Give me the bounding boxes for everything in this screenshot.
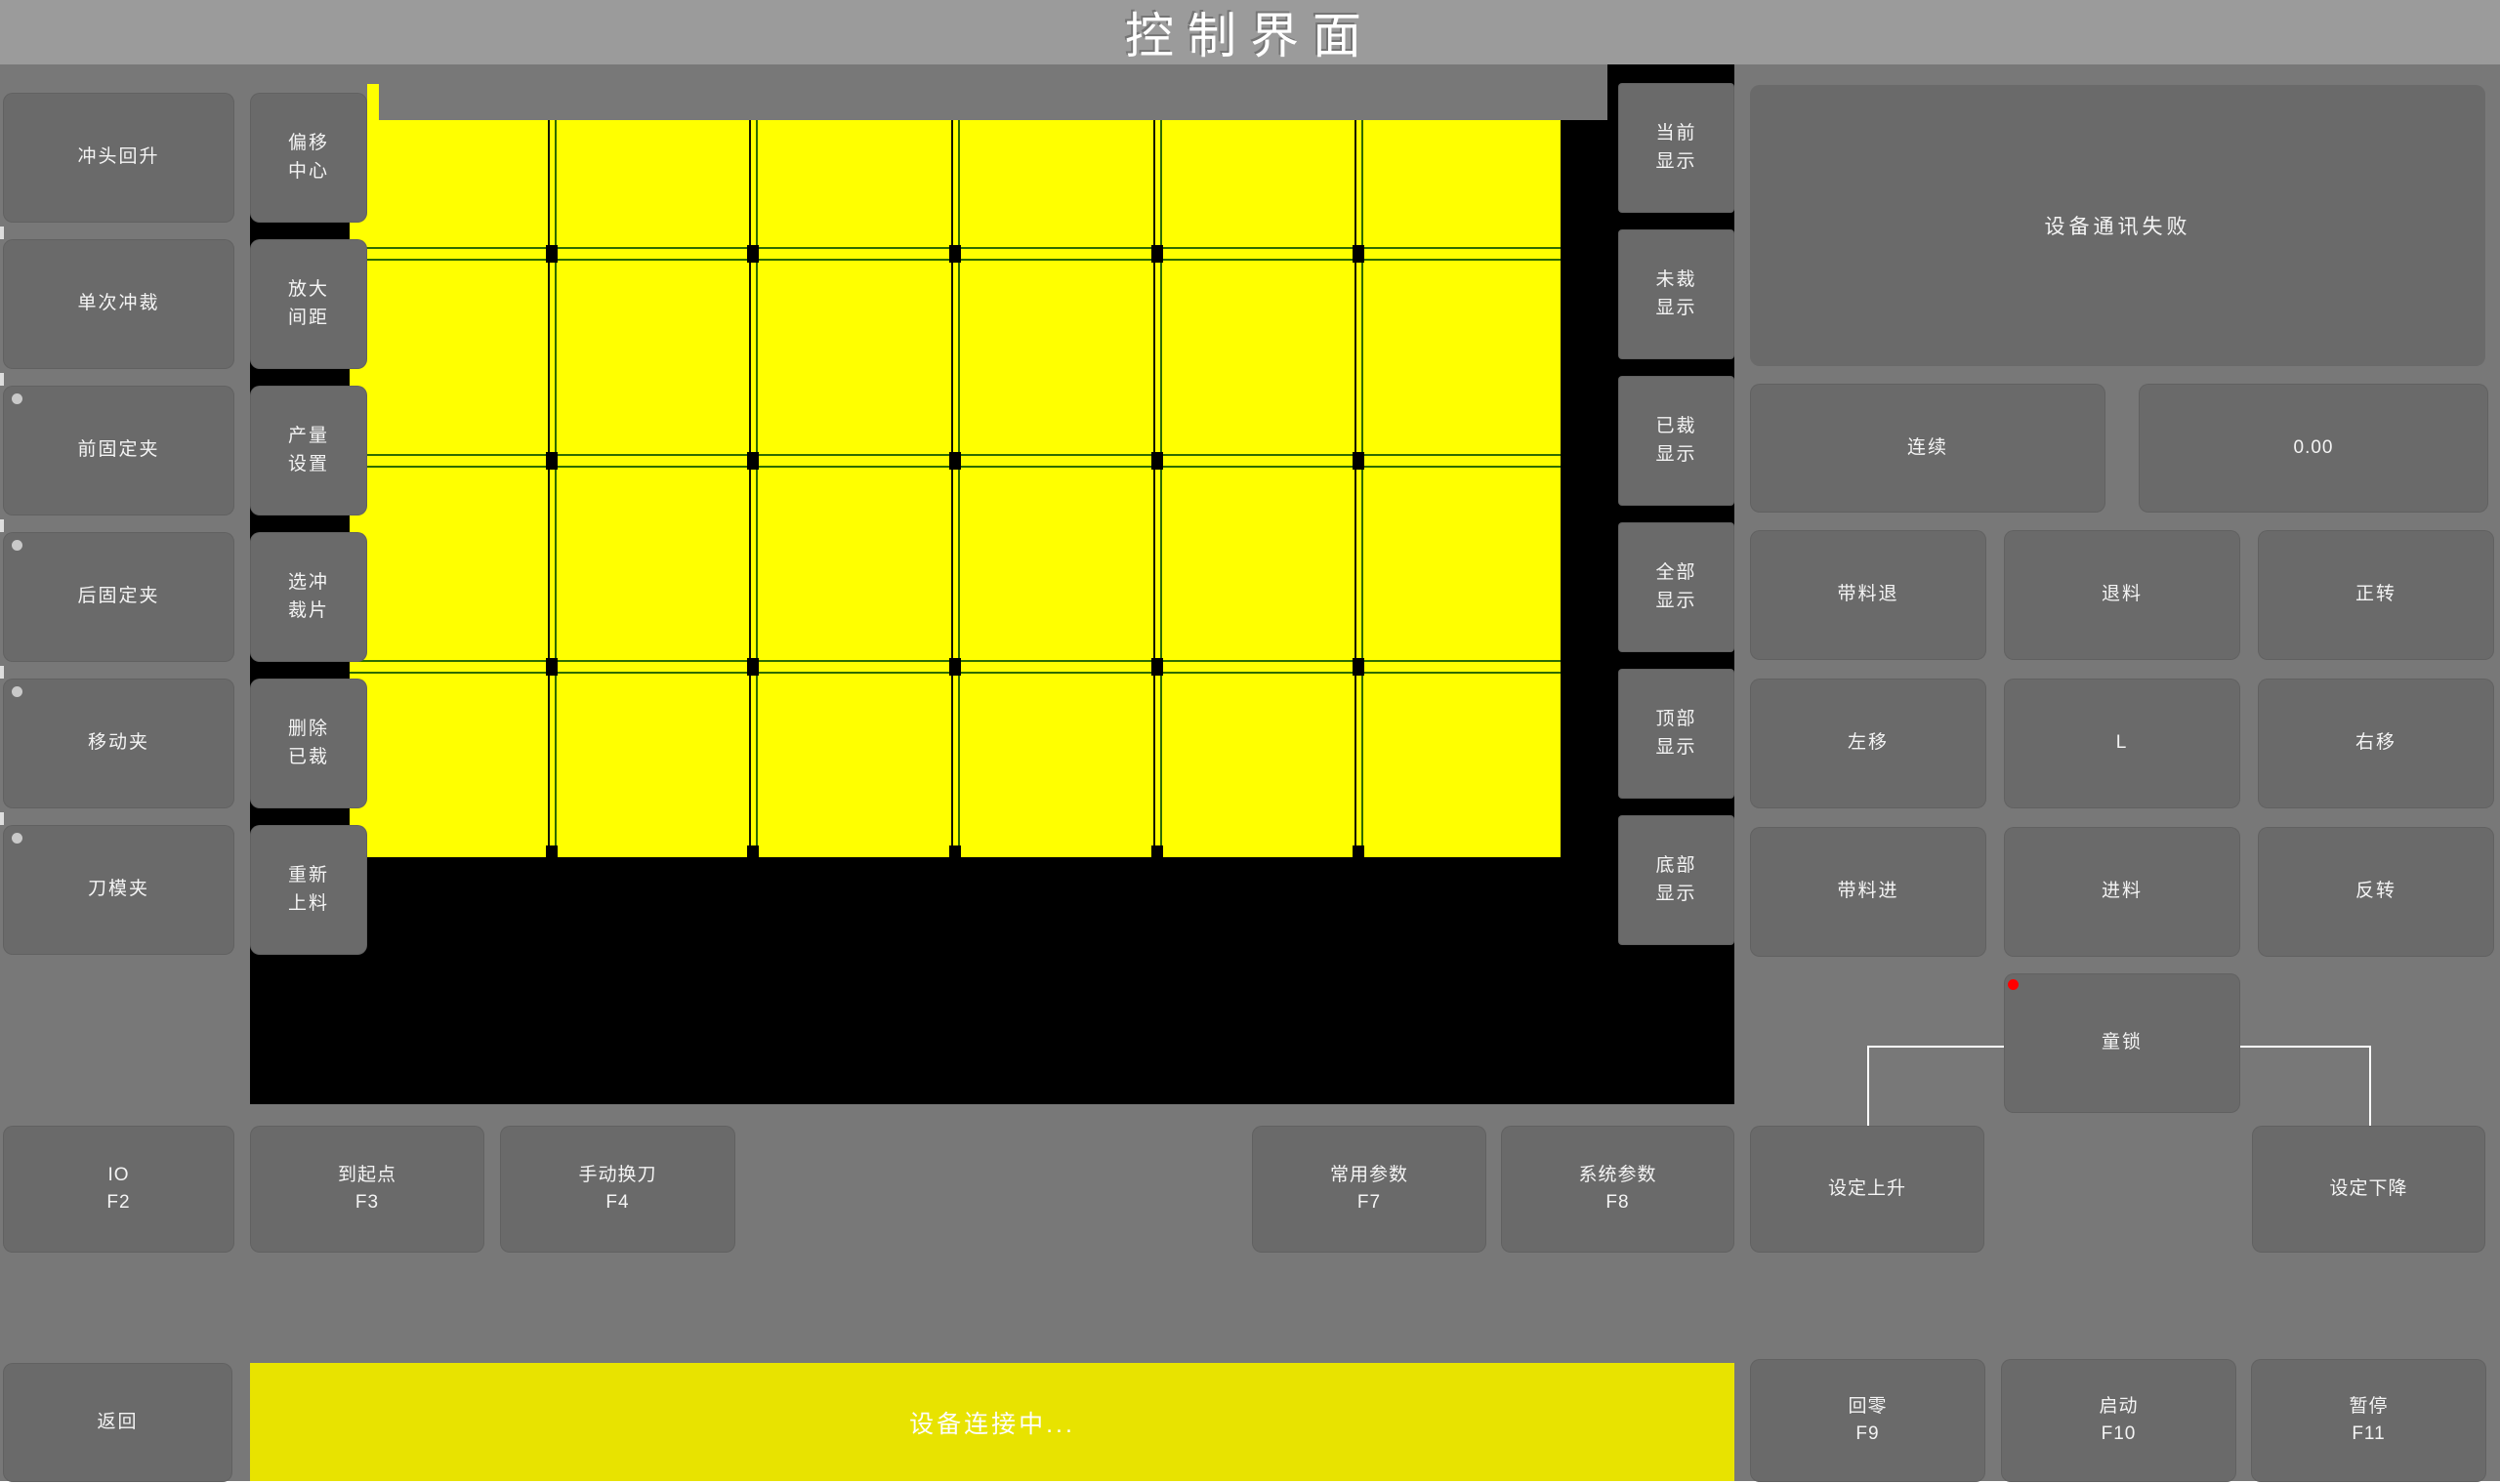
display-item-show-cut[interactable]: 已裁显示: [1618, 376, 1734, 506]
button-label: 刀模夹: [88, 876, 149, 904]
cut-intersection-mark: [747, 245, 759, 263]
sidebar-item-moving-clamp[interactable]: 移动夹: [3, 679, 234, 808]
button-label: 已裁显示: [1652, 413, 1699, 469]
comm-status-panel: 设备通讯失败: [1750, 85, 2485, 366]
button-label: 产量设置: [285, 423, 332, 478]
cut-intersection-mark: [1353, 658, 1364, 676]
jog-button-strip-back[interactable]: 带料退: [1750, 530, 1986, 660]
display-item-show-bottom[interactable]: 底部显示: [1618, 815, 1734, 945]
edge-notch: [0, 373, 4, 386]
material-sheet: [350, 120, 1561, 857]
tool-item-select-piece[interactable]: 选冲裁片: [250, 532, 367, 662]
display-item-show-current[interactable]: 当前显示: [1618, 83, 1734, 213]
cut-bottom-mark: [546, 845, 558, 857]
edge-notch: [0, 519, 4, 532]
button-label: 放大间距: [285, 276, 332, 332]
button-label: 移动夹: [88, 729, 149, 758]
jog-button-strip-forward[interactable]: 带料进: [1750, 827, 1986, 957]
button-label: 后固定夹: [77, 583, 159, 611]
sidebar-item-single-punch[interactable]: 单次冲裁: [3, 239, 234, 369]
tool-item-delete-cut[interactable]: 删除已裁: [250, 679, 367, 808]
button-label: 暂停F11: [2349, 1393, 2388, 1449]
edge-notch: [0, 227, 4, 239]
cut-intersection-mark: [1151, 245, 1163, 263]
cut-intersection-mark: [949, 452, 961, 470]
cut-intersection-mark: [747, 452, 759, 470]
vertical-cut-line: [1354, 120, 1363, 857]
clamp-state-dot-icon: [12, 540, 22, 551]
jog-button-forward-rotate[interactable]: 正转: [2258, 530, 2494, 660]
cut-intersection-mark: [1353, 452, 1364, 470]
button-label: 选冲裁片: [285, 569, 332, 625]
button-label: 当前显示: [1652, 120, 1699, 176]
button-label: 底部显示: [1652, 852, 1699, 908]
jog-button-feed[interactable]: 进料: [2004, 827, 2240, 957]
edge-notch: [0, 812, 4, 825]
vertical-cut-line: [548, 120, 557, 857]
jog-button-jog-l[interactable]: L: [2004, 679, 2240, 808]
cut-intersection-mark: [747, 658, 759, 676]
fn-button-manual-tool-change-f4[interactable]: 手动换刀F4: [500, 1126, 735, 1253]
button-label: 未裁显示: [1652, 267, 1699, 322]
nesting-canvas: [250, 64, 1734, 1104]
cut-intersection-mark: [546, 658, 558, 676]
bracket-line-left: [1867, 1046, 1869, 1128]
edge-notch: [0, 666, 4, 679]
sheet-edge-tab: [367, 84, 379, 121]
cut-intersection-mark: [949, 658, 961, 676]
fn-button-io-f2[interactable]: IOF2: [3, 1126, 234, 1253]
button-label: 设定上升: [1828, 1175, 1906, 1204]
connection-status-bar: 设备连接中...: [250, 1363, 1734, 1482]
button-label: 偏移中心: [285, 130, 332, 185]
fn-button-set-rise[interactable]: 设定上升: [1750, 1126, 1984, 1253]
cut-intersection-mark: [546, 245, 558, 263]
back-button[interactable]: 返回: [3, 1363, 232, 1482]
cut-intersection-mark: [546, 452, 558, 470]
cut-intersection-mark: [949, 245, 961, 263]
bottom-button-home-f9[interactable]: 回零F9: [1750, 1359, 1985, 1482]
vertical-cut-line: [1153, 120, 1162, 857]
mode-button-continuous[interactable]: 连续: [1750, 384, 2105, 513]
display-item-show-top[interactable]: 顶部显示: [1618, 669, 1734, 799]
button-label: 手动换刀F4: [578, 1162, 656, 1217]
jog-button-move-left[interactable]: 左移: [1750, 679, 1986, 808]
button-label: 到起点F3: [338, 1162, 396, 1217]
clamp-state-dot-icon: [12, 686, 22, 697]
vertical-cut-line: [951, 120, 960, 857]
sidebar-item-front-clamp[interactable]: 前固定夹: [3, 386, 234, 515]
sidebar-item-punch-return[interactable]: 冲头回升: [3, 93, 234, 223]
button-label: 重新上料: [285, 862, 332, 918]
clamp-state-dot-icon: [12, 833, 22, 844]
cut-intersection-mark: [1353, 245, 1364, 263]
button-label: 常用参数F7: [1330, 1162, 1408, 1217]
fn-button-set-fall[interactable]: 设定下降: [2252, 1126, 2485, 1253]
button-label: 删除已裁: [285, 716, 332, 771]
fn-button-common-params-f7[interactable]: 常用参数F7: [1252, 1126, 1486, 1253]
fn-button-to-origin-f3[interactable]: 到起点F3: [250, 1126, 484, 1253]
button-label: 顶部显示: [1652, 706, 1699, 762]
counter-value-box: 0.00: [2139, 384, 2488, 513]
jog-button-unload[interactable]: 退料: [2004, 530, 2240, 660]
jog-button-reverse-rotate[interactable]: 反转: [2258, 827, 2494, 957]
button-label: 单次冲裁: [77, 290, 159, 318]
cut-intersection-mark: [1151, 452, 1163, 470]
display-item-show-uncut[interactable]: 未裁显示: [1618, 229, 1734, 359]
display-item-show-all[interactable]: 全部显示: [1618, 522, 1734, 652]
cut-bottom-mark: [949, 845, 961, 857]
page-title: 控制界面: [0, 0, 2500, 64]
red-alert-dot-icon: [2008, 979, 2019, 990]
sidebar-item-rear-clamp[interactable]: 后固定夹: [3, 532, 234, 662]
tool-item-offset-center[interactable]: 偏移中心: [250, 93, 367, 223]
bottom-button-start-f10[interactable]: 启动F10: [2001, 1359, 2236, 1482]
child-lock-button[interactable]: 童锁: [2004, 973, 2240, 1113]
cut-intersection-mark: [1151, 658, 1163, 676]
tool-item-yield-setting[interactable]: 产量设置: [250, 386, 367, 515]
jog-button-move-right[interactable]: 右移: [2258, 679, 2494, 808]
button-label: 设定下降: [2329, 1175, 2407, 1204]
button-label: IOF2: [106, 1162, 130, 1217]
cut-bottom-mark: [1353, 845, 1364, 857]
tool-item-reload-material[interactable]: 重新上料: [250, 825, 367, 955]
vertical-cut-line: [749, 120, 758, 857]
button-label: 前固定夹: [77, 436, 159, 465]
button-label: 冲头回升: [77, 144, 159, 172]
cut-bottom-mark: [747, 845, 759, 857]
clamp-state-dot-icon: [12, 393, 22, 404]
control-screen: 控制界面 设备通讯失败 设备连接中... 冲头回升单次冲裁前固定夹后固定夹移动夹…: [0, 0, 2500, 1484]
button-label: 全部显示: [1652, 559, 1699, 615]
cut-bottom-mark: [1151, 845, 1163, 857]
canvas-top-band: [250, 64, 1607, 120]
button-label: 回零F9: [1848, 1393, 1887, 1449]
bracket-line-right: [2369, 1046, 2371, 1128]
tool-item-enlarge-spacing[interactable]: 放大间距: [250, 239, 367, 369]
button-label: 系统参数F8: [1578, 1162, 1656, 1217]
sidebar-item-die-clamp[interactable]: 刀模夹: [3, 825, 234, 955]
button-label: 启动F10: [2099, 1393, 2138, 1449]
bottom-button-pause-f11[interactable]: 暂停F11: [2251, 1359, 2486, 1482]
fn-button-system-params-f8[interactable]: 系统参数F8: [1501, 1126, 1734, 1253]
